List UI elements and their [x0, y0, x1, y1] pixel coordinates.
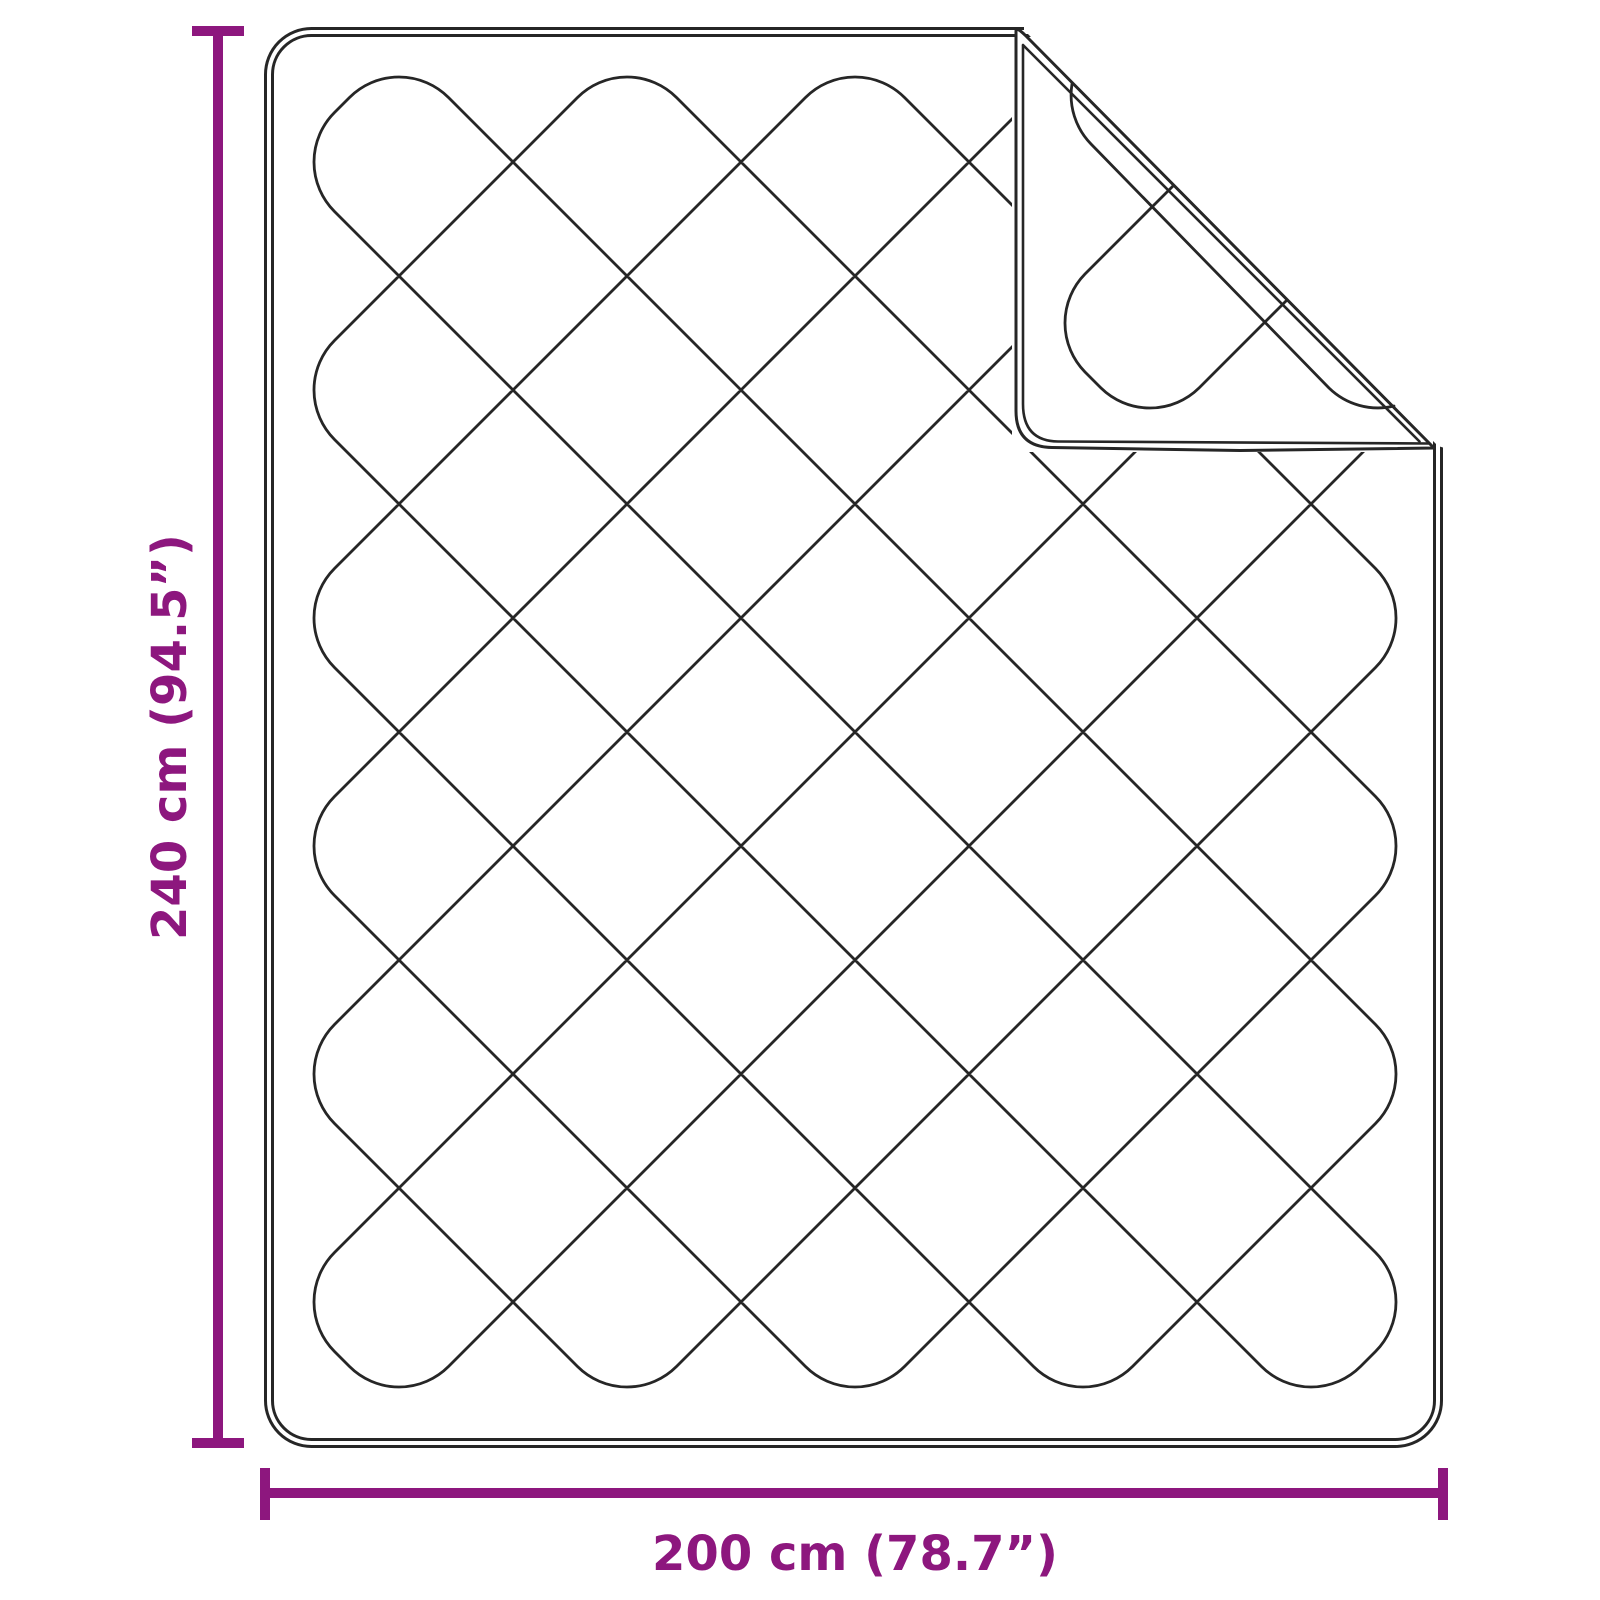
width-dimension-label: 200 cm (78.7”) — [652, 1526, 1058, 1582]
dimension-diagram-svg: 240 cm (94.5”) 200 cm (78.7”) — [0, 0, 1600, 1600]
height-dimension-cap-top — [192, 26, 244, 36]
dimension-diagram: 240 cm (94.5”) 200 cm (78.7”) — [0, 0, 1600, 1600]
width-dimension-cap-right — [1438, 1468, 1448, 1520]
blanket — [266, 14, 1459, 1447]
height-dimension-line — [213, 28, 223, 1447]
width-dimension-line — [265, 1488, 1445, 1498]
height-dimension-cap-bottom — [192, 1438, 244, 1448]
width-dimension-cap-left — [260, 1468, 270, 1520]
height-dimension-label: 240 cm (94.5”) — [142, 534, 198, 940]
